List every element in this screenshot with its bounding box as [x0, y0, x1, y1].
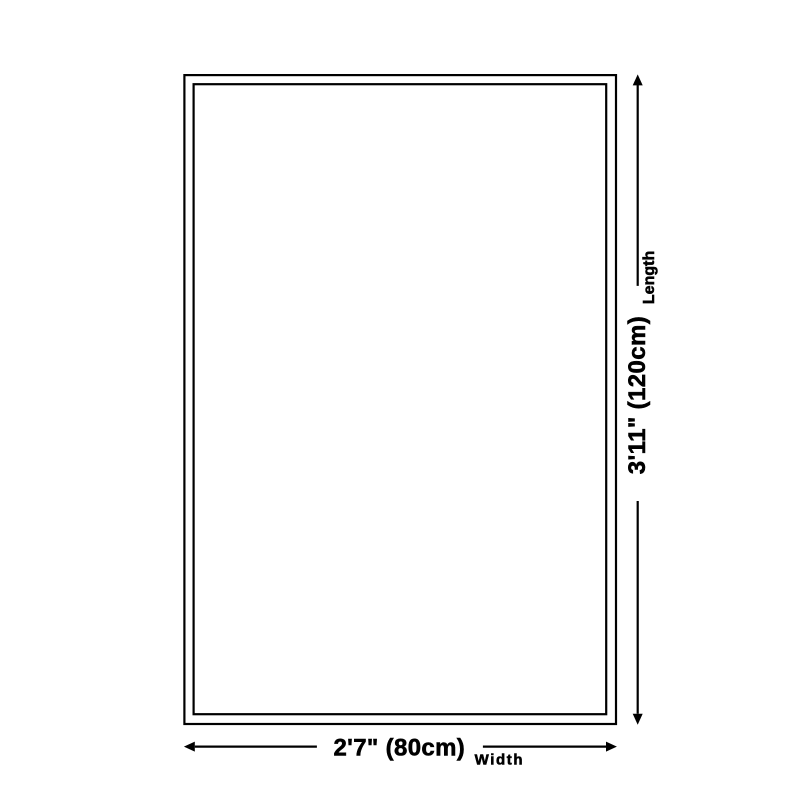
svg-text:Length: Length — [641, 251, 658, 304]
svg-text:2'7" (80cm): 2'7" (80cm) — [333, 735, 465, 762]
svg-text:Width: Width — [475, 752, 525, 769]
svg-text:3'11" (120cm): 3'11" (120cm) — [624, 316, 651, 474]
